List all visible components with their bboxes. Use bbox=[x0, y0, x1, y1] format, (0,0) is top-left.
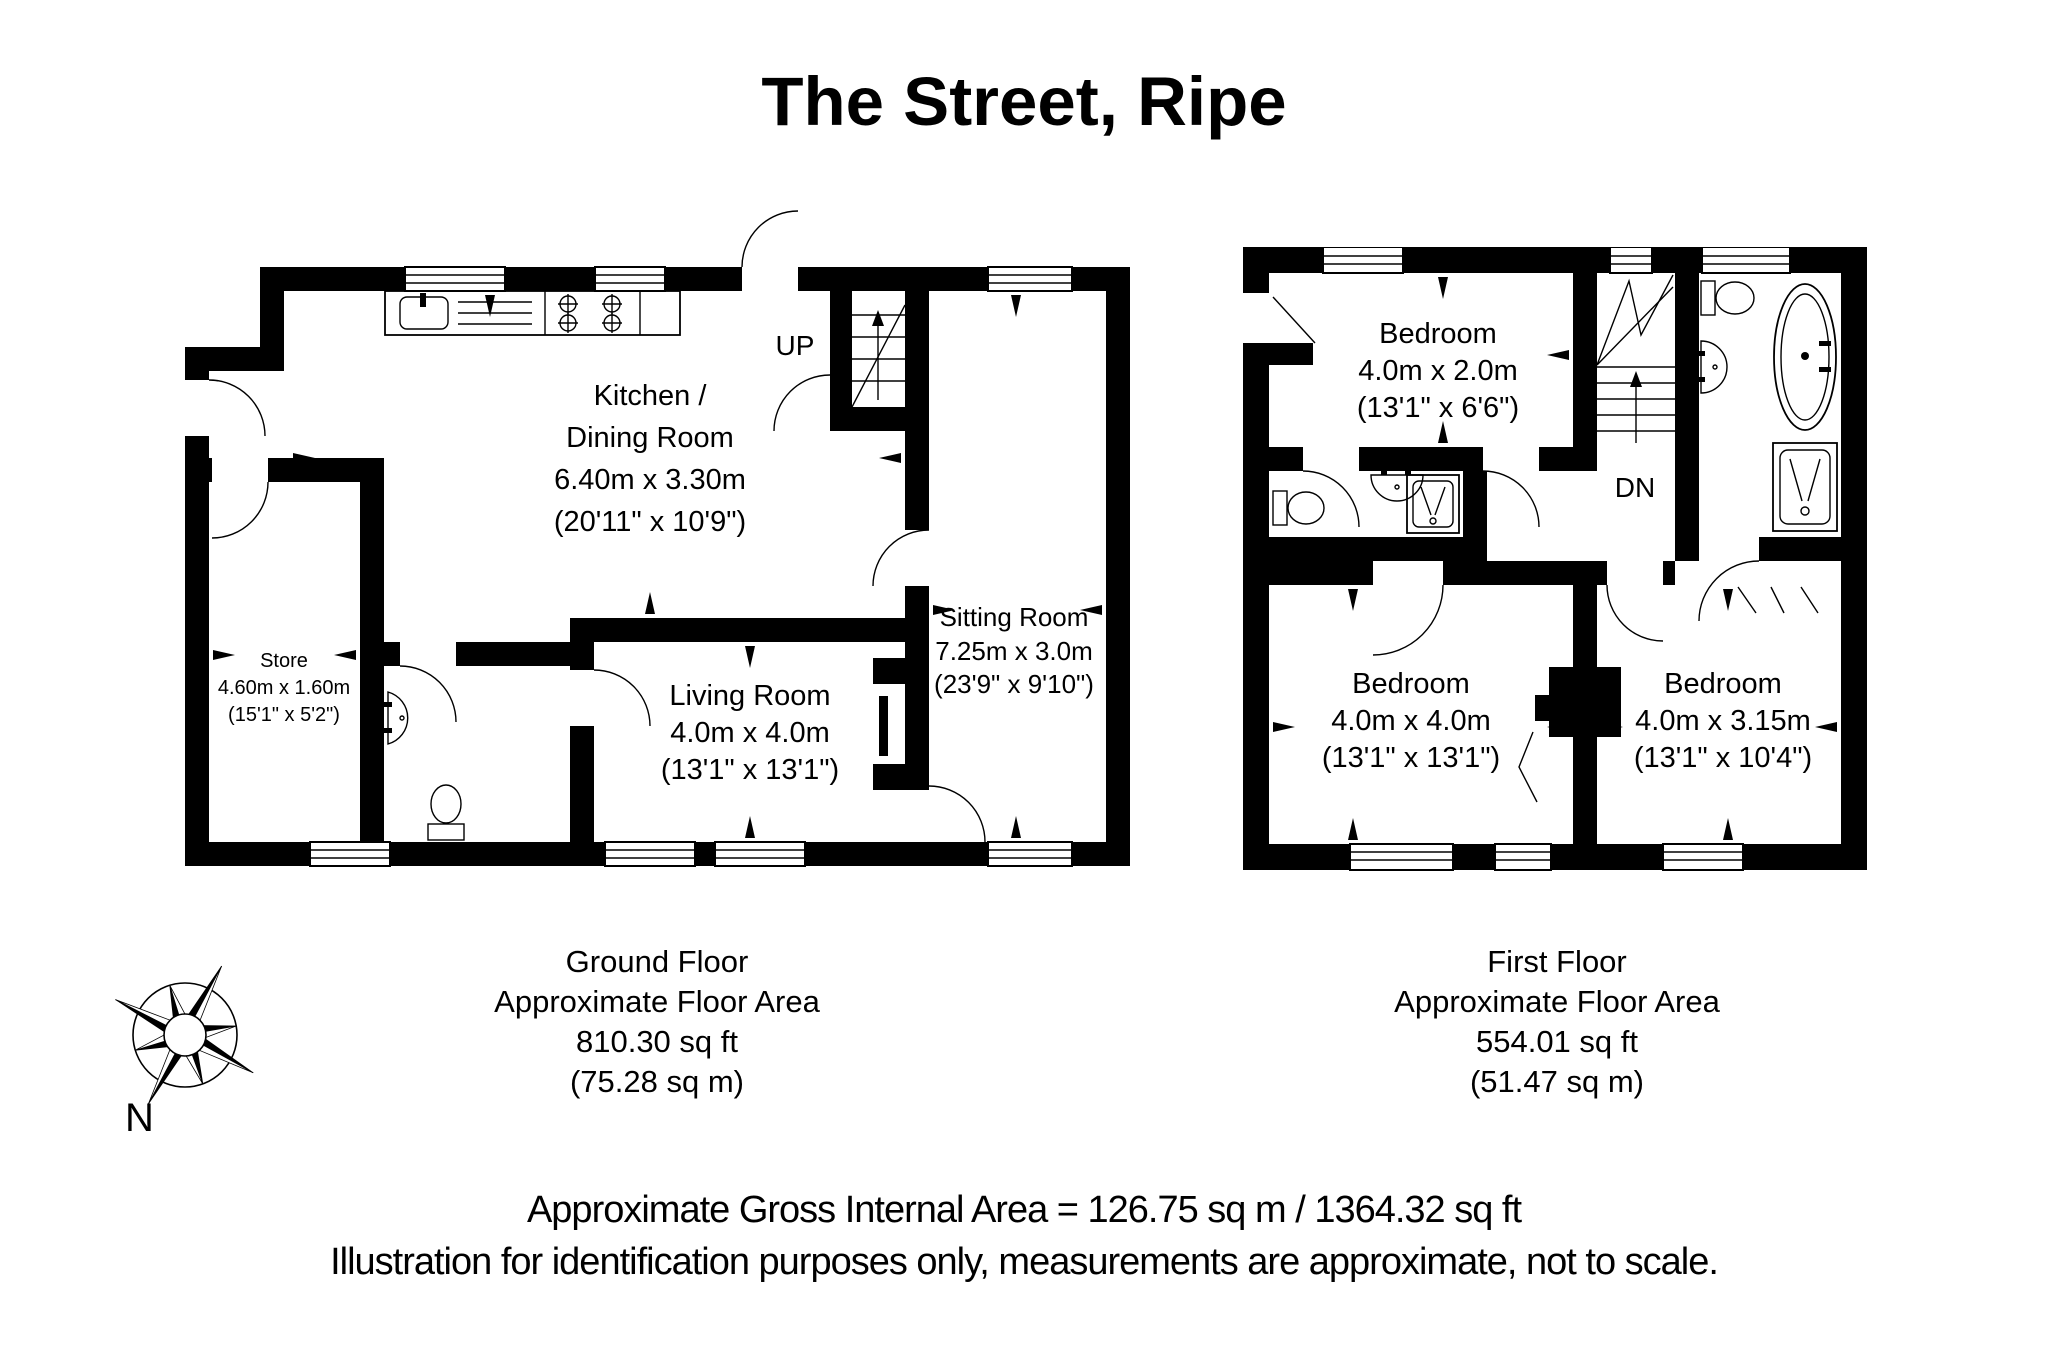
kitchen-counter-icon bbox=[385, 291, 680, 335]
ground-floor-area-m: (75.28 sq m) bbox=[347, 1062, 967, 1102]
compass-north-label: N bbox=[125, 1096, 154, 1140]
svg-text:Bedroom: Bedroom bbox=[1352, 668, 1470, 700]
hob-icon bbox=[558, 294, 622, 333]
svg-text:6.40m x 3.30m: 6.40m x 3.30m bbox=[554, 464, 746, 496]
ensuite-toilet-icon bbox=[1273, 491, 1324, 525]
first-floor-caption: First Floor Approximate Floor Area 554.0… bbox=[1247, 942, 1867, 1102]
svg-text:(13'1" x 13'1"): (13'1" x 13'1") bbox=[1322, 742, 1500, 774]
ensuite-shower-icon bbox=[1407, 475, 1459, 533]
svg-text:Bedroom: Bedroom bbox=[1664, 668, 1782, 700]
first-floor-plan: DN bbox=[1243, 247, 1883, 887]
sitting-room-label: Sitting Room 7.25m x 3.0m (23'9" x 9'10"… bbox=[934, 602, 1094, 699]
shower-icon bbox=[1773, 443, 1837, 531]
svg-text:(23'9" x 9'10"): (23'9" x 9'10") bbox=[934, 669, 1094, 699]
first-floor-walls bbox=[1243, 247, 1867, 870]
first-floor-area-label: Approximate Floor Area bbox=[1247, 982, 1867, 1022]
wc-toilet-icon bbox=[428, 785, 464, 840]
svg-text:Kitchen /: Kitchen / bbox=[594, 380, 708, 412]
bedroom3-label: Bedroom 4.0m x 3.15m (13'1" x 10'4") bbox=[1634, 668, 1812, 774]
bathtub-icon bbox=[1774, 284, 1836, 430]
svg-text:(13'1" x 13'1"): (13'1" x 13'1") bbox=[661, 754, 839, 786]
bathroom-basin-icon bbox=[1697, 341, 1727, 393]
bedroom2-label: Bedroom 4.0m x 4.0m (13'1" x 13'1") bbox=[1322, 668, 1500, 774]
svg-text:4.0m x 2.0m: 4.0m x 2.0m bbox=[1358, 355, 1518, 387]
svg-text:(13'1" x 6'6"): (13'1" x 6'6") bbox=[1357, 392, 1519, 424]
svg-text:Sitting Room: Sitting Room bbox=[940, 602, 1089, 632]
stairs-down-label: DN bbox=[1615, 472, 1655, 503]
wc-basin-icon bbox=[384, 692, 408, 744]
svg-text:(20'11" x 10'9"): (20'11" x 10'9") bbox=[554, 506, 746, 538]
svg-text:4.60m x 1.60m: 4.60m x 1.60m bbox=[218, 677, 350, 699]
ground-floor-caption: Ground Floor Approximate Floor Area 810.… bbox=[347, 942, 967, 1102]
first-floor-name: First Floor bbox=[1247, 942, 1867, 982]
compass-rose-icon: N bbox=[80, 935, 290, 1150]
svg-text:(13'1" x 10'4"): (13'1" x 10'4") bbox=[1634, 742, 1812, 774]
first-floor-area-m: (51.47 sq m) bbox=[1247, 1062, 1867, 1102]
ground-floor-walls bbox=[185, 267, 1130, 866]
stairs-up-label: UP bbox=[776, 330, 815, 361]
svg-text:7.25m x 3.0m: 7.25m x 3.0m bbox=[935, 636, 1093, 666]
gross-internal-area: Approximate Gross Internal Area = 126.75… bbox=[0, 1185, 2048, 1235]
svg-text:4.0m x 4.0m: 4.0m x 4.0m bbox=[1331, 705, 1491, 737]
bedroom1-label: Bedroom 4.0m x 2.0m (13'1" x 6'6") bbox=[1357, 318, 1519, 424]
first-floor-area-ft: 554.01 sq ft bbox=[1247, 1022, 1867, 1062]
ground-floor-dimension-arrows bbox=[213, 295, 1102, 838]
svg-text:(15'1" x 5'2"): (15'1" x 5'2") bbox=[228, 704, 340, 726]
ground-floor-area-ft: 810.30 sq ft bbox=[347, 1022, 967, 1062]
svg-text:Store: Store bbox=[260, 650, 308, 672]
svg-text:Dining Room: Dining Room bbox=[566, 422, 734, 454]
store-label: Store 4.60m x 1.60m (15'1" x 5'2") bbox=[218, 650, 350, 726]
ground-floor-plan: UP Kitchen / Dining Room 6.40m x 3. bbox=[150, 190, 1140, 900]
staircase-down bbox=[1597, 275, 1675, 443]
living-room-label: Living Room 4.0m x 4.0m (13'1" x 13'1") bbox=[661, 680, 839, 786]
bathroom-toilet-icon bbox=[1701, 281, 1754, 315]
disclaimer: Illustration for identification purposes… bbox=[0, 1237, 2048, 1287]
svg-text:Living Room: Living Room bbox=[669, 680, 830, 712]
svg-text:Bedroom: Bedroom bbox=[1379, 318, 1497, 350]
staircase-up bbox=[852, 305, 905, 407]
sink-icon bbox=[400, 293, 532, 329]
ensuite-basin-icon bbox=[1371, 467, 1423, 501]
kitchen-label: Kitchen / Dining Room 6.40m x 3.30m (20'… bbox=[554, 380, 746, 538]
ground-floor-name: Ground Floor bbox=[347, 942, 967, 982]
ground-floor-area-label: Approximate Floor Area bbox=[347, 982, 967, 1022]
fireplace-icon bbox=[873, 658, 929, 790]
page-title: The Street, Ripe bbox=[0, 62, 2048, 141]
svg-text:4.0m x 3.15m: 4.0m x 3.15m bbox=[1635, 705, 1811, 737]
svg-text:4.0m x 4.0m: 4.0m x 4.0m bbox=[670, 717, 830, 749]
